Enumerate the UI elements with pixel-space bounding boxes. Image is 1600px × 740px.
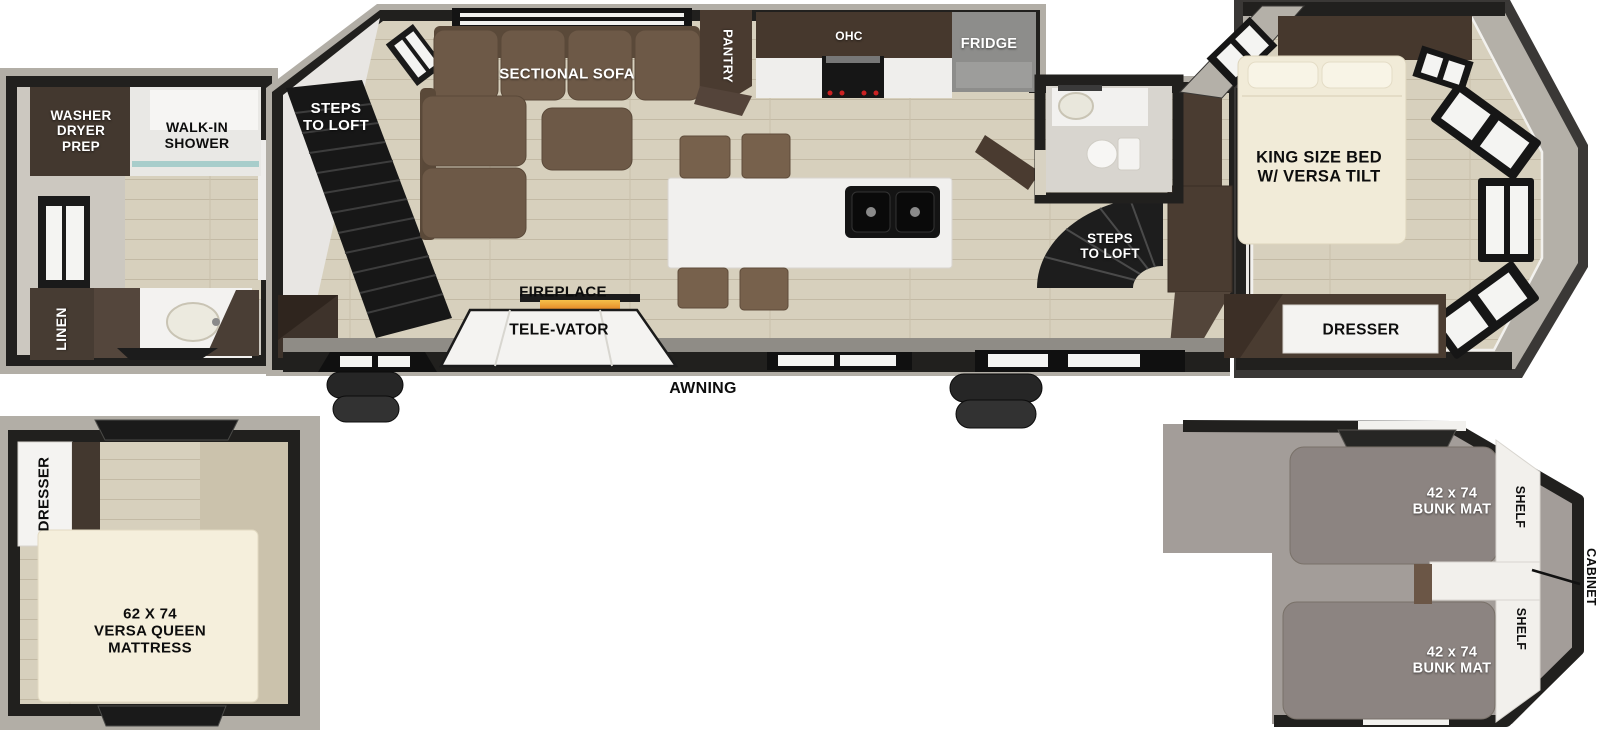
shower-glass-door bbox=[132, 161, 259, 167]
fridge bbox=[952, 12, 1036, 92]
slide-edge bbox=[283, 338, 1238, 352]
bunk-mat bbox=[1283, 602, 1495, 719]
queen-mattress bbox=[38, 530, 258, 702]
entry-steps bbox=[950, 374, 1042, 428]
bar-stool bbox=[680, 136, 730, 178]
kitchen-island bbox=[668, 178, 952, 268]
bathroom-vanity-sink bbox=[140, 288, 259, 358]
stove bbox=[822, 56, 884, 98]
bath-wood-floor bbox=[125, 170, 261, 300]
window bbox=[767, 352, 912, 370]
queen-loft-section bbox=[0, 416, 320, 730]
cabinet-end bbox=[1414, 564, 1432, 604]
bedroom-slide-cabinet bbox=[1180, 88, 1222, 190]
bar-stool bbox=[678, 268, 728, 308]
rv-floorplan: WASHER DRYER PREP WALK-IN SHOWER LINEN S… bbox=[0, 0, 1600, 740]
tele-vator-tv-lift bbox=[441, 310, 676, 366]
island-sink bbox=[845, 186, 940, 238]
pantry-cabinet bbox=[694, 10, 752, 116]
window bbox=[1478, 178, 1534, 262]
half-bath bbox=[1035, 80, 1178, 198]
bedroom-dresser bbox=[1224, 294, 1446, 358]
living-kitchen-section bbox=[266, 4, 1246, 376]
skylight bbox=[95, 420, 238, 440]
king-bed bbox=[1238, 56, 1406, 244]
bath-door-opening bbox=[1035, 150, 1046, 195]
entry-steps bbox=[327, 372, 403, 422]
bar-stool bbox=[742, 134, 790, 178]
bunk-mat bbox=[1290, 447, 1497, 564]
bunk-loft-section bbox=[1163, 421, 1584, 725]
shower-pan bbox=[150, 90, 258, 130]
window bbox=[38, 196, 90, 288]
washer-dryer-prep-cabinet bbox=[30, 87, 130, 176]
entry-door bbox=[318, 352, 437, 372]
bar-stool bbox=[740, 268, 788, 310]
loft-cabinet bbox=[1430, 562, 1540, 600]
rear-bath-section bbox=[0, 68, 278, 374]
master-bedroom-section bbox=[1180, 0, 1588, 378]
shelf bbox=[1496, 600, 1540, 722]
linen-cabinet bbox=[30, 288, 94, 360]
overhead-cabinet bbox=[756, 12, 952, 58]
loft-cabinet bbox=[72, 442, 100, 540]
skylight bbox=[98, 706, 226, 726]
entry-door bbox=[975, 350, 1185, 372]
ottoman bbox=[542, 108, 632, 170]
floorplan-drawing bbox=[0, 0, 1600, 740]
shelf bbox=[1496, 440, 1540, 562]
vanity-cabinet bbox=[94, 288, 140, 358]
bathroom-sink bbox=[1059, 93, 1093, 119]
